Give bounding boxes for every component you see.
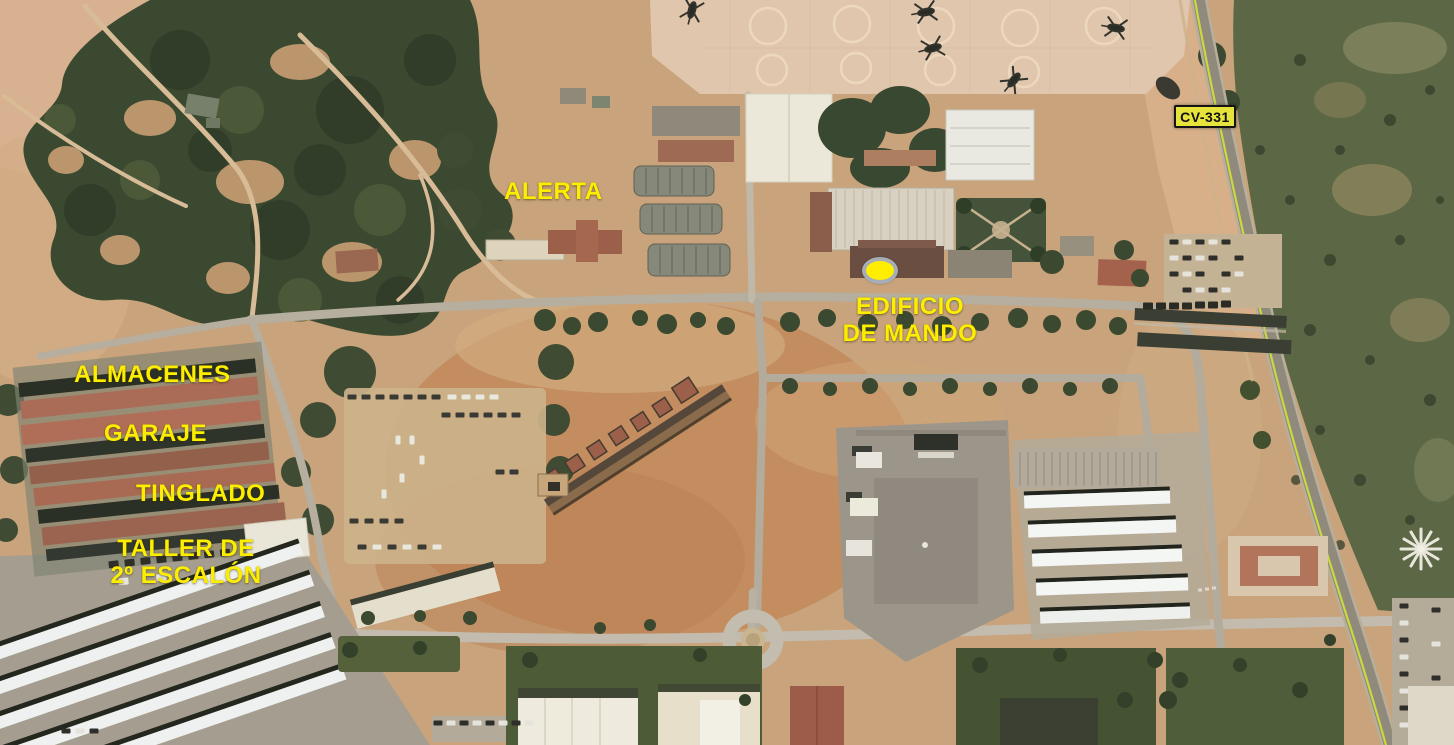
edificio-de-mando-marker <box>862 257 898 284</box>
helicopter-apron <box>650 0 1190 104</box>
aerial-base-map: ALERTA EDIFICIO DE MANDO ALMACENES GARAJ… <box>0 0 1454 745</box>
label-edificio-line1: EDIFICIO <box>830 294 990 321</box>
label-tinglado: TINGLADO <box>136 481 265 508</box>
label-garaje: GARAJE <box>104 421 207 448</box>
label-alerta: ALERTA <box>504 179 603 206</box>
label-taller-line1: TALLER DE <box>103 536 269 563</box>
label-taller-line2: 2º ESCALÓN <box>103 563 269 590</box>
label-edificio-line2: DE MANDO <box>830 321 990 348</box>
road-sign-cv331: CV-331 <box>1174 105 1236 128</box>
label-taller-2-escalon: TALLER DE 2º ESCALÓN <box>103 536 269 590</box>
label-edificio-de-mando: EDIFICIO DE MANDO <box>830 294 990 348</box>
label-almacenes: ALMACENES <box>74 362 231 389</box>
